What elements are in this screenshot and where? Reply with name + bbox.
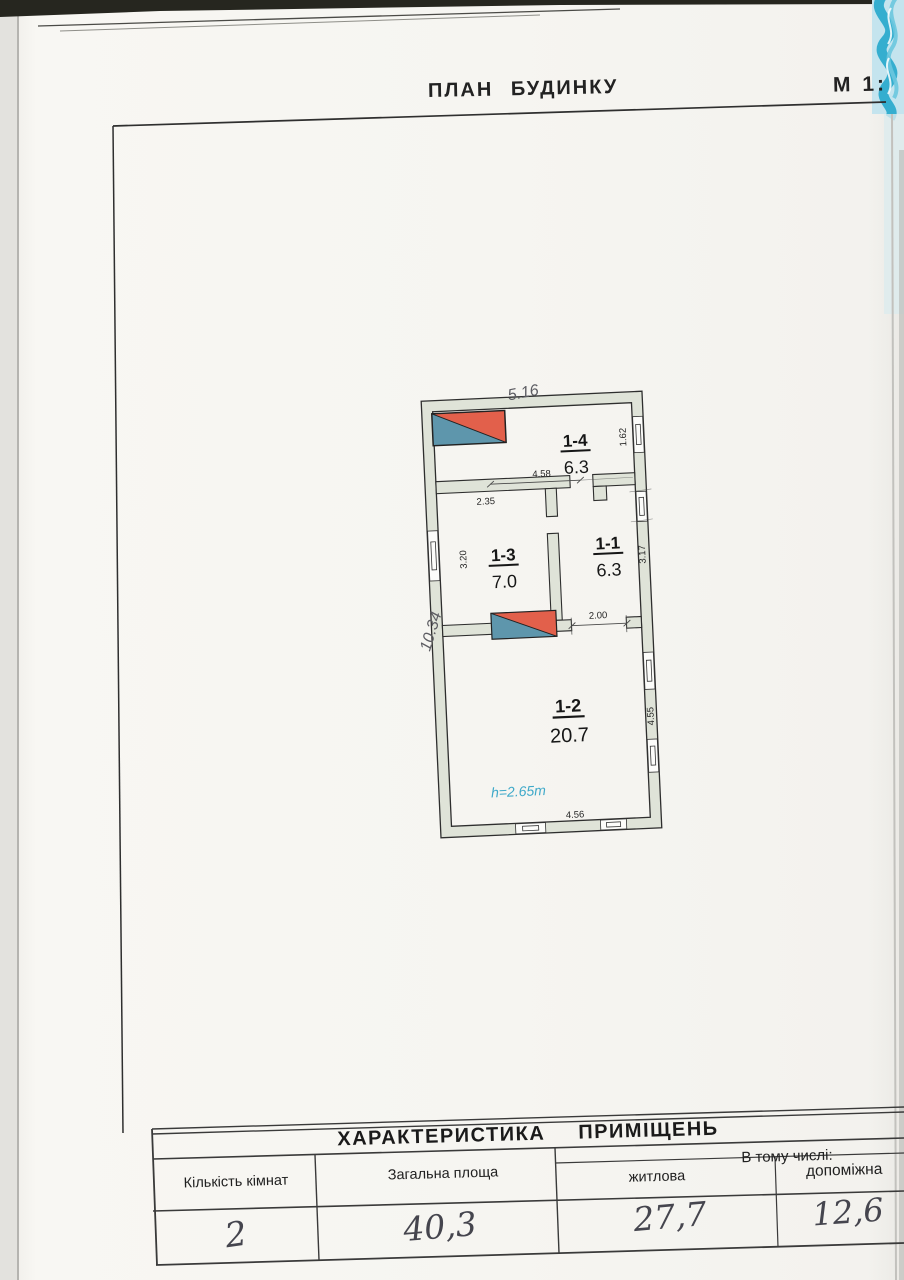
room13-id: 1-3 bbox=[491, 545, 516, 565]
value-total: 40,3 bbox=[391, 1206, 490, 1249]
top-scan-edge bbox=[0, 0, 904, 17]
ceiling-height-note: h=2.65m bbox=[491, 782, 547, 800]
room11-id: 1-1 bbox=[595, 533, 620, 553]
col-total: Загальна площа bbox=[363, 1165, 523, 1185]
page-title: ПЛАН БУДИНКУ bbox=[428, 77, 619, 102]
col-living: житлова bbox=[582, 1168, 732, 1187]
dim-window14: 1.62 bbox=[618, 428, 630, 447]
left-scanner-strip bbox=[0, 0, 17, 1280]
value-auxiliary: 12,6 bbox=[799, 1193, 897, 1233]
scale-label: М 1: bbox=[833, 73, 887, 96]
scanned-page: ПЛАН БУДИНКУ М 1: bbox=[0, 0, 904, 1280]
value-rooms: 2 bbox=[194, 1213, 278, 1259]
stove-symbol-room14 bbox=[432, 410, 506, 445]
col-auxiliary: допоміжна bbox=[806, 1160, 904, 1180]
room12-id: 1-2 bbox=[555, 695, 582, 716]
stove-symbol-room12 bbox=[491, 610, 557, 639]
room11-area: 6.3 bbox=[596, 559, 622, 580]
value-living: 27,7 bbox=[621, 1196, 720, 1239]
dim-room12-width: 4.56 bbox=[566, 809, 585, 821]
dim-door12-width: 2.00 bbox=[589, 610, 608, 622]
room13-area: 7.0 bbox=[491, 571, 517, 592]
dim-room11-depth: 3.17 bbox=[637, 545, 649, 564]
dim-room13-width: 2.35 bbox=[476, 496, 495, 508]
floor-plan: 1-4 6.3 1-3 7.0 1-1 6.3 1-2 20.7 4.58 2.… bbox=[390, 366, 673, 847]
blue-cover-pattern bbox=[872, 0, 904, 314]
room14-id: 1-4 bbox=[562, 431, 588, 451]
table-title: ХАРАКТЕРИСТИКА ПРИМІЩЕНЬ bbox=[303, 1118, 753, 1152]
dim-room13-depth: 3.20 bbox=[458, 550, 470, 569]
right-page-edge bbox=[892, 114, 896, 1280]
dim-hall-width: 4.58 bbox=[532, 468, 551, 480]
room14-area: 6.3 bbox=[563, 457, 589, 478]
dim-room12-depth: 4.55 bbox=[645, 707, 657, 726]
col-rooms: Кількість кімнат bbox=[156, 1173, 316, 1193]
room12-area: 20.7 bbox=[550, 724, 590, 748]
